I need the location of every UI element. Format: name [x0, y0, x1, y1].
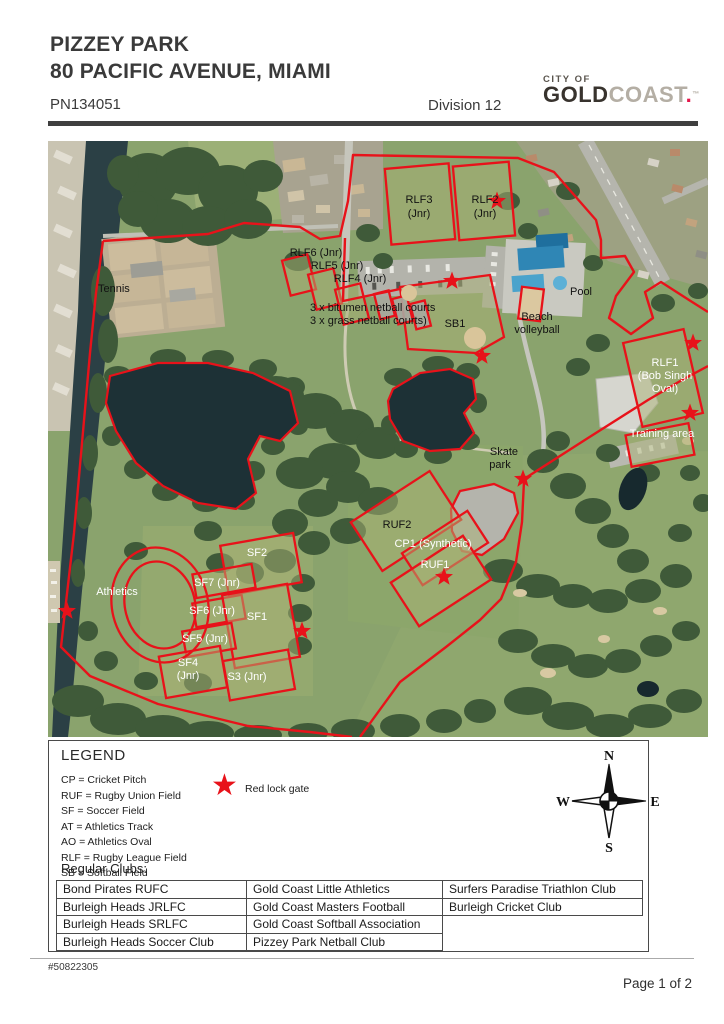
map-label-rlf3: RLF3 [406, 194, 433, 206]
map-label-sf1: SF1 [247, 611, 267, 623]
clubs-table-row: Burleigh Heads SRLFCGold Coast Softball … [57, 916, 643, 934]
map-label-athletics: Athletics [96, 586, 138, 598]
map-label-sf4: SF4 [178, 657, 198, 669]
empty-cell [443, 933, 643, 951]
legend-item-ao: AO = Athletics Oval [61, 835, 187, 851]
compass-s: S [605, 841, 613, 856]
compass-e: E [650, 795, 659, 810]
compass-w: W [556, 795, 570, 810]
club-name: Gold Coast Masters Football [247, 898, 443, 916]
map-label-skate: Skate [490, 446, 518, 458]
clubs-table-row: Bond Pirates RUFCGold Coast Little Athle… [57, 881, 643, 899]
club-name: Pizzey Park Netball Club [247, 933, 443, 951]
map-label-training-area: Training area [630, 428, 695, 440]
red-lock-gate-label: Red lock gate [245, 783, 309, 795]
logo-wordmark: GOLDCOAST.™ [543, 85, 703, 105]
golf-pond [637, 681, 659, 697]
map-label-jnr: (Jnr) [474, 208, 497, 220]
map-label-rlf1: RLF1 [652, 357, 679, 369]
map-label-cp1-synthetic: CP1 (Synthetic) [394, 538, 471, 550]
document-reference: #50822305 [48, 962, 98, 973]
aerial-map: TennisRLF3(Jnr)RLF2(Jnr)RLF6 (Jnr)RLF5 (… [48, 141, 708, 737]
map-label-volleyball: volleyball [514, 324, 559, 336]
red-lock-gate-icon: ★ [211, 771, 238, 801]
map-label-beach: Beach [521, 311, 552, 323]
clubs-table-row: Burleigh Heads Soccer ClubPizzey Park Ne… [57, 933, 643, 951]
softball-diamond [464, 327, 486, 349]
pool-complex [502, 233, 586, 317]
club-name: Burleigh Cricket Club [443, 898, 643, 916]
legend-item-sf: SF = Soccer Field [61, 804, 187, 820]
map-label-jnr: (Jnr) [408, 208, 431, 220]
legend-item-cp: CP = Cricket Pitch [61, 773, 187, 789]
map-label-sb1: SB1 [445, 318, 466, 330]
legend-item-at: AT = Athletics Track [61, 820, 187, 836]
map-label-sf6-jnr: SF6 (Jnr) [189, 605, 235, 617]
compass-rose: N S W E [554, 746, 664, 856]
legend-title: LEGEND [61, 747, 126, 764]
clubs-table-row: Burleigh Heads JRLFCGold Coast Masters F… [57, 898, 643, 916]
softball-diamond [401, 285, 417, 301]
map-label-rlf6-jnr: RLF6 (Jnr) [290, 247, 343, 259]
page-address: 80 PACIFIC AVENUE, MIAMI [50, 60, 331, 84]
map-label-rlf5-jnr: RLF5 (Jnr) [311, 260, 364, 272]
map-label-oval: Oval) [652, 383, 678, 395]
empty-cell [443, 916, 643, 934]
map-label-pool: Pool [570, 286, 592, 298]
compass-n: N [604, 749, 614, 764]
page: { "header": { "title": "PIZZEY PARK", "s… [0, 0, 724, 1024]
club-name: Burleigh Heads SRLFC [57, 916, 247, 934]
map-label-rlf2: RLF2 [472, 194, 499, 206]
map-label-s3-jnr: S3 (Jnr) [227, 671, 266, 683]
map-label-3-x-grass-netball-courts: 3 x grass netball courts) [310, 315, 427, 327]
page-number: Page 1 of 2 [623, 976, 692, 991]
clubs-table: Bond Pirates RUFCGold Coast Little Athle… [56, 880, 643, 951]
map-label-sf5-jnr: SF5 (Jnr) [182, 633, 228, 645]
page-title: PIZZEY PARK [50, 33, 189, 57]
legend-item-ruf: RUF = Rugby Union Field [61, 789, 187, 805]
map-label-rlf4-jnr: RLF4 (Jnr) [334, 273, 387, 285]
map-label-bob-singh: (Bob Singh [638, 370, 692, 382]
header-divider [48, 121, 698, 126]
map-label-jnr: (Jnr) [177, 670, 200, 682]
map-label-3-x-bitumen-netball-courts: 3 x bitumen netball courts [310, 302, 436, 314]
club-name: Burleigh Heads Soccer Club [57, 933, 247, 951]
clubs-heading: Regular Clubs: [61, 861, 147, 876]
legend-panel: LEGEND CP = Cricket PitchRUF = Rugby Uni… [48, 740, 649, 952]
gold-coast-logo: CITY OF GOLDCOAST.™ [543, 74, 703, 105]
map-label-ruf1: RUF1 [421, 559, 450, 571]
plan-number: PN134051 [50, 96, 121, 113]
footer-divider [30, 958, 694, 959]
map-label-sf2: SF2 [247, 547, 267, 559]
map-label-tennis: Tennis [98, 283, 130, 295]
club-name: Gold Coast Softball Association [247, 916, 443, 934]
map-label-ruf2: RUF2 [383, 519, 412, 531]
division-label: Division 12 [428, 97, 501, 114]
club-name: Bond Pirates RUFC [57, 881, 247, 899]
map-label-sf7-jnr: SF7 (Jnr) [194, 577, 240, 589]
club-name: Surfers Paradise Triathlon Club [443, 881, 643, 899]
map-label-park: park [489, 459, 511, 471]
club-name: Gold Coast Little Athletics [247, 881, 443, 899]
club-name: Burleigh Heads JRLFC [57, 898, 247, 916]
